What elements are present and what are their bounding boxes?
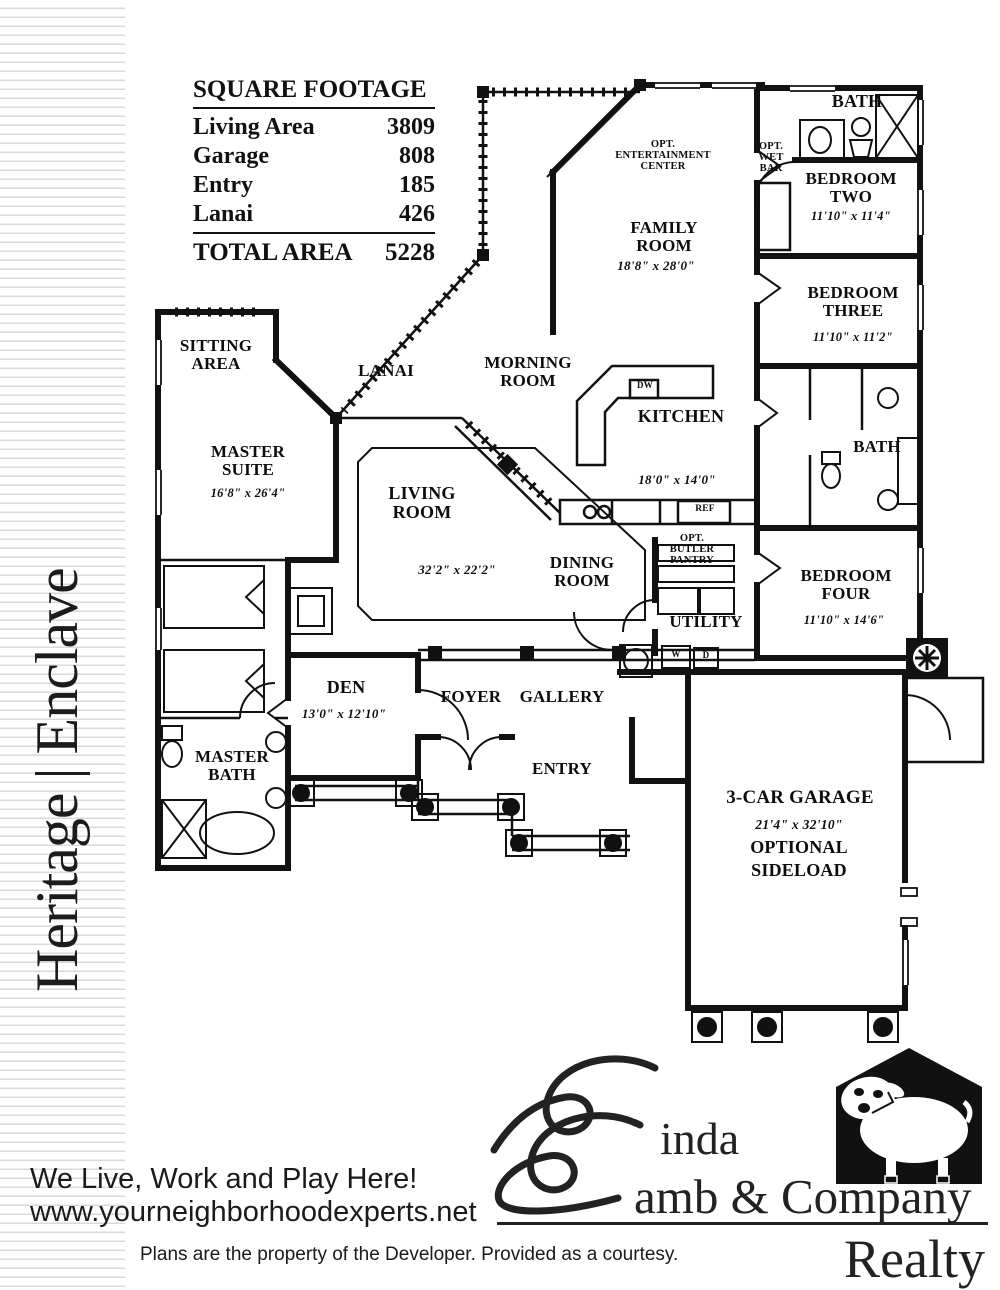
room-dims-den: 13'0" x 12'10" xyxy=(279,706,409,722)
dryer-label: D xyxy=(698,651,714,660)
toilet-icon xyxy=(162,741,182,767)
sink-icon xyxy=(850,140,872,157)
window-marks xyxy=(916,285,924,330)
window-marks xyxy=(901,888,917,926)
label-opt-wet-bar: OPT. WET BAR xyxy=(750,142,792,175)
room-label-entry: ENTRY xyxy=(517,760,607,778)
tagline-text: We Live, Work and Play Here! xyxy=(30,1163,417,1196)
room-dims-master-suite: 16'8" x 26'4" xyxy=(183,486,313,501)
fan-icon xyxy=(906,638,948,678)
washer-label: W xyxy=(668,650,684,659)
room-label-garage: 3-CAR GARAGE xyxy=(710,788,890,808)
sink-icon xyxy=(266,788,286,808)
room-dims-garage: 21'4" x 32'10" xyxy=(724,817,874,833)
kitchen-counter xyxy=(560,500,757,524)
door-arc xyxy=(905,695,950,740)
logo-divider-rule xyxy=(497,1222,988,1225)
toilet-icon xyxy=(822,464,840,488)
flyer-page: Heritage | Enclave SQUARE FOOTAGE Living… xyxy=(0,0,1000,1290)
room-dims-kitchen: 18'0" x 14'0" xyxy=(612,472,742,488)
door-fold xyxy=(757,398,777,428)
sink-icon xyxy=(584,506,596,518)
room-label-family-room: FAMILY ROOM xyxy=(614,219,714,254)
room-label-den: DEN xyxy=(306,678,386,697)
sink-icon xyxy=(878,490,898,510)
door-fold xyxy=(246,580,264,614)
room-dims-living-room: 32'2" x 22'2" xyxy=(387,562,527,578)
window-marks xyxy=(790,84,835,92)
window-marks xyxy=(712,81,756,89)
window-marks xyxy=(916,190,924,235)
dishwasher-label: DW xyxy=(630,381,660,390)
door-fold xyxy=(246,664,264,698)
room-label-dining-room: DINING ROOM xyxy=(540,554,625,589)
room-label-bath-mid: BATH xyxy=(842,438,912,456)
room-label-master-bath: MASTER BATH xyxy=(187,748,277,783)
window-marks xyxy=(154,340,162,385)
fireplace-icon xyxy=(290,588,332,634)
door-arc xyxy=(623,600,655,632)
logo-division: Realty xyxy=(844,1228,985,1290)
door-arc xyxy=(438,737,471,770)
room-label-bedroom-three: BEDROOM THREE xyxy=(796,284,911,319)
refrigerator-label: REF xyxy=(685,505,725,515)
garage-note-optional: OPTIONAL xyxy=(719,838,879,857)
room-label-foyer: FOYER xyxy=(426,688,516,706)
window-marks xyxy=(901,940,909,985)
room-label-utility: UTILITY xyxy=(656,613,756,631)
fireplace-icon xyxy=(298,596,324,626)
toilet-icon xyxy=(162,726,182,740)
lamb-house-logo-icon xyxy=(836,1048,982,1184)
room-dims-family-room: 18'8" x 28'0" xyxy=(596,258,716,274)
window-marks xyxy=(154,608,162,650)
label-opt-butler-pantry: OPT. BUTLER PANTRY xyxy=(661,534,723,567)
room-dims-bedroom-two: 11'10" x 11'4" xyxy=(786,209,916,224)
window-marks xyxy=(916,548,924,593)
room-label-bath-top: BATH xyxy=(817,92,897,111)
door-arc xyxy=(469,737,502,770)
label-opt-entertainment-center: OPT. ENTERTAINMENT CENTER xyxy=(604,140,722,173)
tub-icon xyxy=(200,812,274,854)
room-label-living-room: LIVING ROOM xyxy=(380,484,465,521)
window-marks xyxy=(655,81,700,89)
closet xyxy=(164,650,264,712)
website-url: www.yourneighborhoodexperts.net xyxy=(30,1196,477,1229)
room-dims-bedroom-four: 11'10" x 14'6" xyxy=(779,613,909,628)
room-label-lanai: LANAI xyxy=(336,362,436,380)
logo-name-line2: amb & Company xyxy=(634,1168,972,1225)
living-room-ceiling-outline xyxy=(358,448,645,620)
room-label-bedroom-two: BEDROOM TWO xyxy=(794,170,909,205)
toilet-icon xyxy=(822,452,840,464)
logo-name-line1: inda xyxy=(660,1112,739,1165)
room-label-bedroom-four: BEDROOM FOUR xyxy=(791,567,901,602)
room-dims-bedroom-three: 11'10" x 11'2" xyxy=(788,330,918,345)
sink-icon xyxy=(878,388,898,408)
garage-note-sideload: SIDELOAD xyxy=(719,861,879,880)
room-label-morning-room: MORNING ROOM xyxy=(481,354,576,389)
door-fold xyxy=(757,552,780,585)
room-label-master-suite: MASTER SUITE xyxy=(206,443,291,478)
room-label-sitting-area: SITTING AREA xyxy=(174,337,259,372)
door-arc xyxy=(574,612,612,650)
disclaimer-text: Plans are the property of the Developer.… xyxy=(140,1244,678,1266)
window-marks xyxy=(154,470,162,515)
door-fold xyxy=(757,272,780,305)
logo-monogram xyxy=(494,1059,655,1211)
room-label-kitchen: KITCHEN xyxy=(621,407,741,426)
sink-icon xyxy=(852,118,870,136)
room-label-gallery: GALLERY xyxy=(512,688,612,706)
closet xyxy=(164,566,264,628)
